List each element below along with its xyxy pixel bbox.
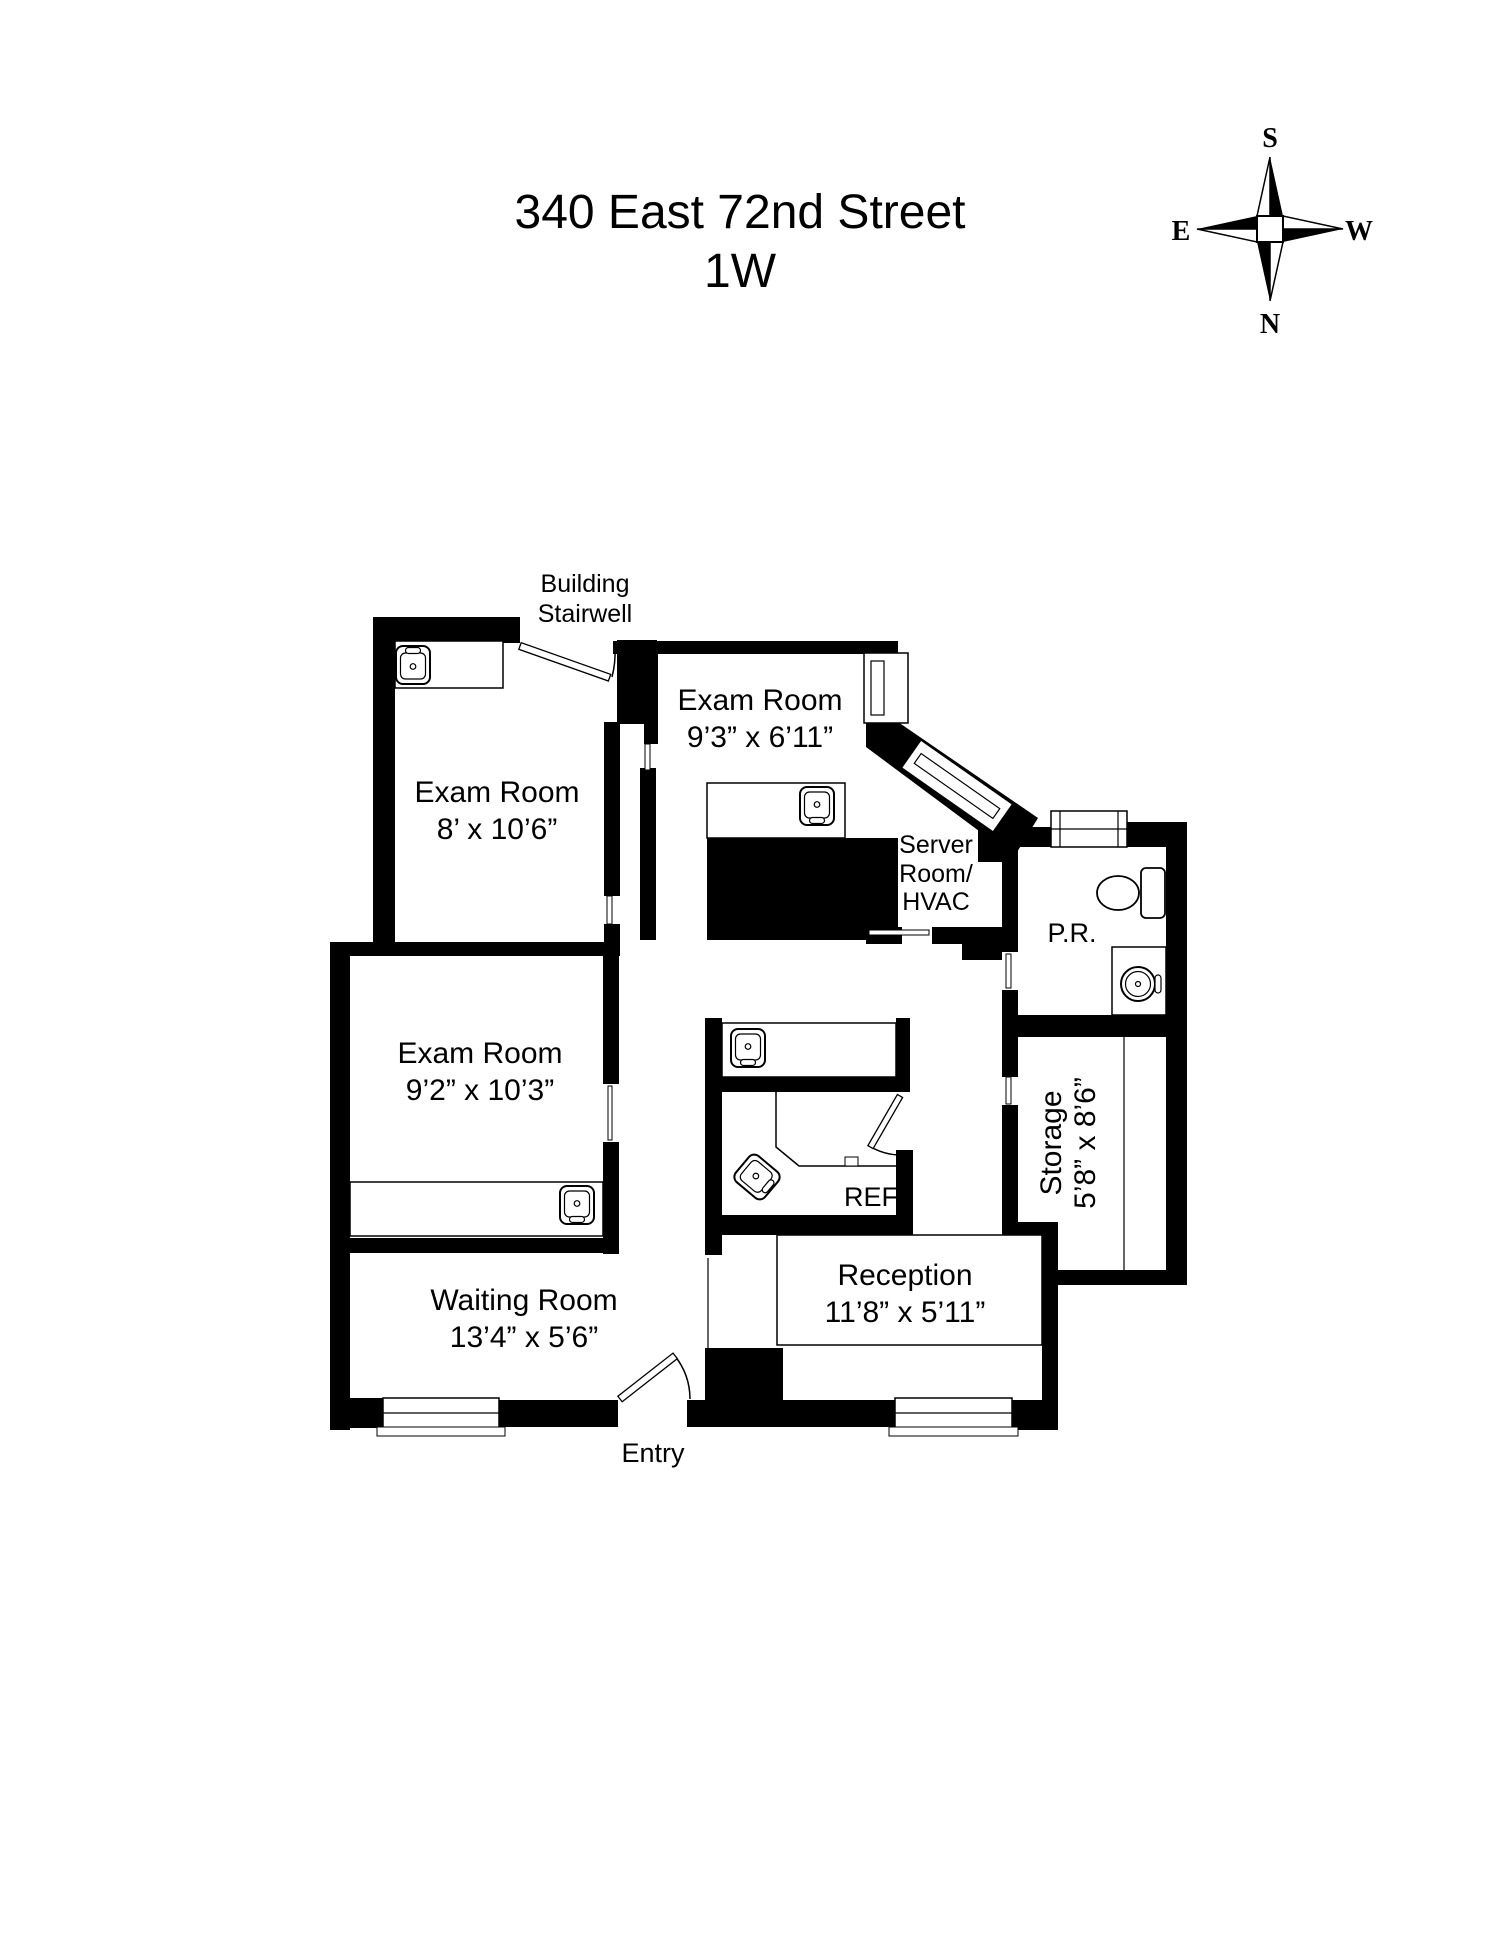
- entry-label: Entry: [621, 1438, 685, 1468]
- sink-icon: [560, 1186, 594, 1224]
- powder-room-label: P.R.: [1047, 918, 1096, 948]
- wall: [373, 617, 395, 956]
- wall: [896, 1150, 913, 1218]
- wall: [1002, 1037, 1018, 1077]
- reception-dims: 11’8” x 5’11”: [825, 1296, 986, 1329]
- wall: [1042, 1237, 1058, 1402]
- server-room-label: Server: [899, 831, 973, 859]
- wall: [1010, 1400, 1058, 1430]
- ref-label: REF: [844, 1182, 898, 1212]
- compass-east-label: E: [1172, 216, 1191, 247]
- compass-west-label: W: [1345, 216, 1373, 247]
- room-dims-exam-top-left: 8’ x 10’6”: [437, 813, 558, 846]
- building-stairwell-label: Building: [541, 570, 630, 598]
- window-icon: [377, 1398, 505, 1436]
- wall: [603, 1142, 619, 1254]
- door-swing-icon: [608, 1086, 612, 1140]
- sink-icon: [396, 646, 430, 684]
- waiting-room-dims: 13’4” x 5’6”: [450, 1321, 598, 1354]
- storage-label: Storage: [1035, 1090, 1068, 1195]
- wall: [962, 927, 1002, 960]
- window-icon: [1051, 811, 1127, 847]
- building-stairwell-label: Stairwell: [538, 600, 632, 628]
- wall: [687, 1400, 897, 1427]
- wall: [497, 1400, 618, 1427]
- window-icon: [889, 1398, 1018, 1436]
- floorplan-drawing: 340 East 72nd Street 1W S N E W: [0, 0, 1500, 1941]
- wall: [373, 617, 520, 643]
- sink-icon: [800, 787, 834, 825]
- wall: [640, 768, 656, 940]
- wall: [330, 1238, 619, 1253]
- wall: [705, 1077, 910, 1092]
- wall: [644, 654, 658, 744]
- room-label-exam-middle-left: Exam Room: [397, 1037, 562, 1070]
- wall: [604, 722, 620, 896]
- door-swing-icon: [1006, 1077, 1011, 1104]
- door-swing-icon: [607, 896, 612, 924]
- wall: [1017, 827, 1055, 847]
- wall: [896, 1018, 910, 1077]
- wall: [345, 1400, 387, 1427]
- wall: [705, 1215, 913, 1235]
- room-dims-exam-middle-left: 9’2” x 10’3”: [406, 1074, 554, 1107]
- room-label-exam-top-middle: Exam Room: [677, 684, 842, 717]
- page-subtitle: 1W: [704, 245, 777, 298]
- compass-south-label: S: [1262, 123, 1278, 154]
- sink-icon: [731, 1029, 765, 1067]
- compass-north-label: N: [1260, 309, 1280, 340]
- counter: [845, 1157, 858, 1166]
- server-room-label: Room/: [899, 860, 973, 888]
- waiting-room-label: Waiting Room: [430, 1284, 617, 1317]
- door-swing-icon: [645, 744, 650, 770]
- server-room-label: HVAC: [902, 888, 970, 916]
- wall: [1166, 843, 1187, 1285]
- wall: [1002, 847, 1018, 952]
- wall: [330, 942, 620, 956]
- room-label-exam-top-left: Exam Room: [414, 776, 579, 809]
- wall: [603, 942, 619, 1084]
- wall: [707, 838, 898, 940]
- storage-dims: 5’8” x 8’6”: [1069, 1077, 1102, 1209]
- page-title: 340 East 72nd Street: [515, 186, 966, 239]
- room-dims-exam-top-middle: 9’3” x 6’11”: [687, 721, 833, 754]
- wall: [705, 1348, 783, 1402]
- wall: [1058, 1270, 1187, 1285]
- floorplan-page: 340 East 72nd Street 1W S N E W: [0, 0, 1500, 1941]
- door-swing-icon: [869, 930, 929, 935]
- window-icon: [864, 653, 908, 723]
- reception-label: Reception: [837, 1259, 972, 1292]
- wall: [330, 942, 350, 1430]
- wall: [1002, 1015, 1168, 1037]
- wall: [1002, 1105, 1018, 1222]
- door-swing-icon: [1006, 954, 1011, 988]
